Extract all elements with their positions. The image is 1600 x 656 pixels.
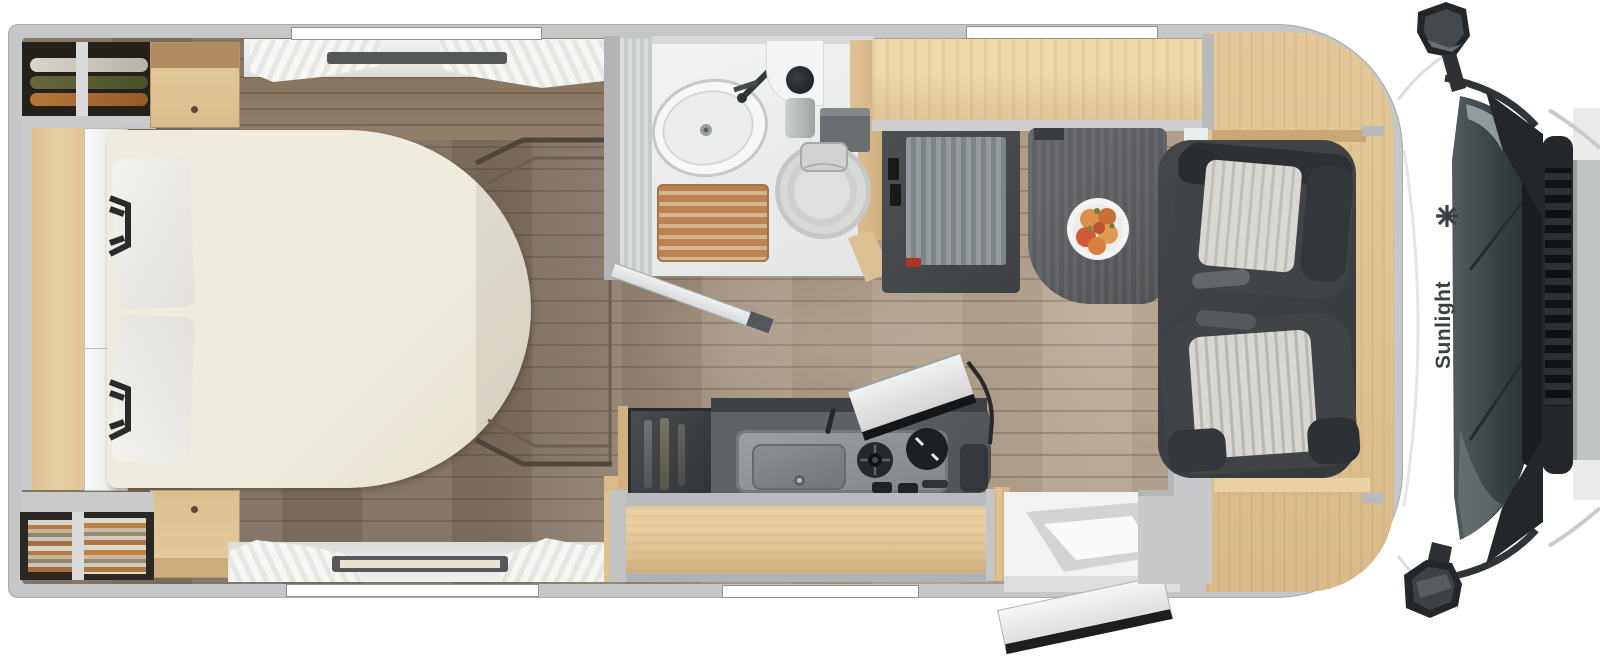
svg-text:Sunlight: Sunlight [1432, 281, 1455, 369]
